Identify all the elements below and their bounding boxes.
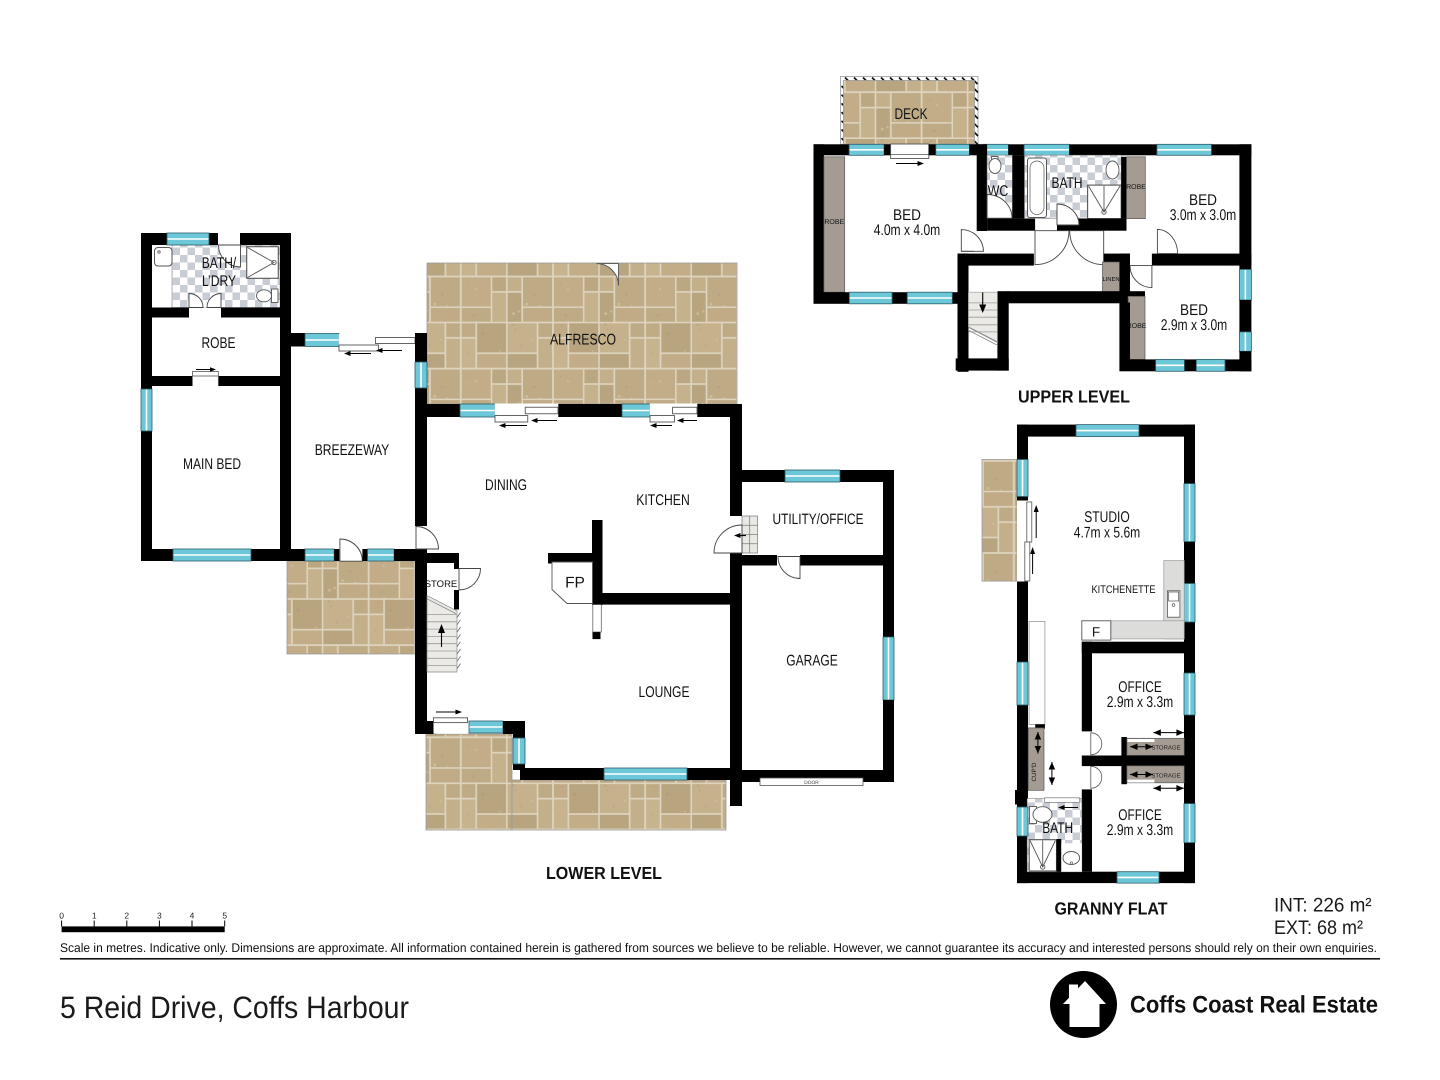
svg-text:2.9m x 3.3m: 2.9m x 3.3m bbox=[1107, 822, 1174, 839]
svg-text:1: 1 bbox=[92, 911, 97, 921]
svg-text:STORAGE: STORAGE bbox=[1151, 745, 1180, 752]
svg-text:0: 0 bbox=[59, 911, 64, 921]
svg-text:5: 5 bbox=[222, 911, 227, 921]
svg-text:KITCHENETTE: KITCHENETTE bbox=[1092, 584, 1156, 596]
svg-text:3: 3 bbox=[157, 911, 162, 921]
svg-text:CUP’D: CUP’D bbox=[1031, 762, 1038, 781]
svg-text:Coffs Coast Real Estate: Coffs Coast Real Estate bbox=[1130, 992, 1378, 1019]
svg-text:GARAGE: GARAGE bbox=[786, 653, 838, 670]
svg-text:DOOR: DOOR bbox=[804, 780, 819, 786]
svg-text:UTILITY/OFFICE: UTILITY/OFFICE bbox=[773, 511, 864, 528]
svg-text:4: 4 bbox=[190, 911, 195, 921]
svg-text:L’DRY: L’DRY bbox=[202, 273, 236, 290]
svg-text:4.0m x 4.0m: 4.0m x 4.0m bbox=[874, 222, 941, 239]
svg-text:ALFRESCO: ALFRESCO bbox=[550, 332, 616, 349]
svg-text:LOWER LEVEL: LOWER LEVEL bbox=[546, 863, 662, 883]
svg-text:BREEZEWAY: BREEZEWAY bbox=[315, 442, 390, 459]
svg-text:INT: 226 m²: INT: 226 m² bbox=[1274, 895, 1372, 917]
svg-text:ROBE: ROBE bbox=[202, 335, 236, 352]
svg-text:5 Reid Drive, Coffs Harbour: 5 Reid Drive, Coffs Harbour bbox=[60, 990, 409, 1025]
svg-text:DINING: DINING bbox=[485, 477, 527, 494]
svg-text:2.9m x 3.0m: 2.9m x 3.0m bbox=[1161, 317, 1228, 334]
svg-text:2: 2 bbox=[124, 911, 129, 921]
svg-text:ROBE: ROBE bbox=[824, 219, 844, 226]
svg-text:STORE: STORE bbox=[425, 579, 458, 590]
svg-text:UPPER LEVEL: UPPER LEVEL bbox=[1018, 387, 1130, 407]
svg-text:LOUNGE: LOUNGE bbox=[639, 684, 690, 701]
svg-text:Scale in metres. Indicative on: Scale in metres. Indicative only. Dimens… bbox=[60, 941, 1377, 955]
svg-text:LINEN: LINEN bbox=[1102, 277, 1119, 283]
svg-text:ROBE: ROBE bbox=[1126, 184, 1146, 191]
svg-text:BATH/: BATH/ bbox=[202, 255, 237, 272]
svg-text:BATH: BATH bbox=[1042, 820, 1073, 837]
svg-text:GRANNY FLAT: GRANNY FLAT bbox=[1055, 899, 1168, 919]
svg-text:4.7m x 5.6m: 4.7m x 5.6m bbox=[1074, 525, 1141, 542]
svg-text:DECK: DECK bbox=[895, 106, 928, 123]
svg-text:STORAGE: STORAGE bbox=[1151, 772, 1180, 779]
svg-text:BATH: BATH bbox=[1052, 175, 1083, 192]
svg-text:FP: FP bbox=[565, 575, 585, 592]
svg-text:EXT: 68 m²: EXT: 68 m² bbox=[1274, 917, 1363, 939]
svg-text:KITCHEN: KITCHEN bbox=[636, 492, 690, 509]
svg-text:MAIN BED: MAIN BED bbox=[183, 456, 241, 473]
svg-text:2.9m x 3.3m: 2.9m x 3.3m bbox=[1107, 694, 1174, 711]
svg-text:3.0m x 3.0m: 3.0m x 3.0m bbox=[1170, 207, 1237, 224]
svg-text:STUDIO: STUDIO bbox=[1084, 509, 1130, 526]
svg-text:F: F bbox=[1092, 625, 1100, 640]
